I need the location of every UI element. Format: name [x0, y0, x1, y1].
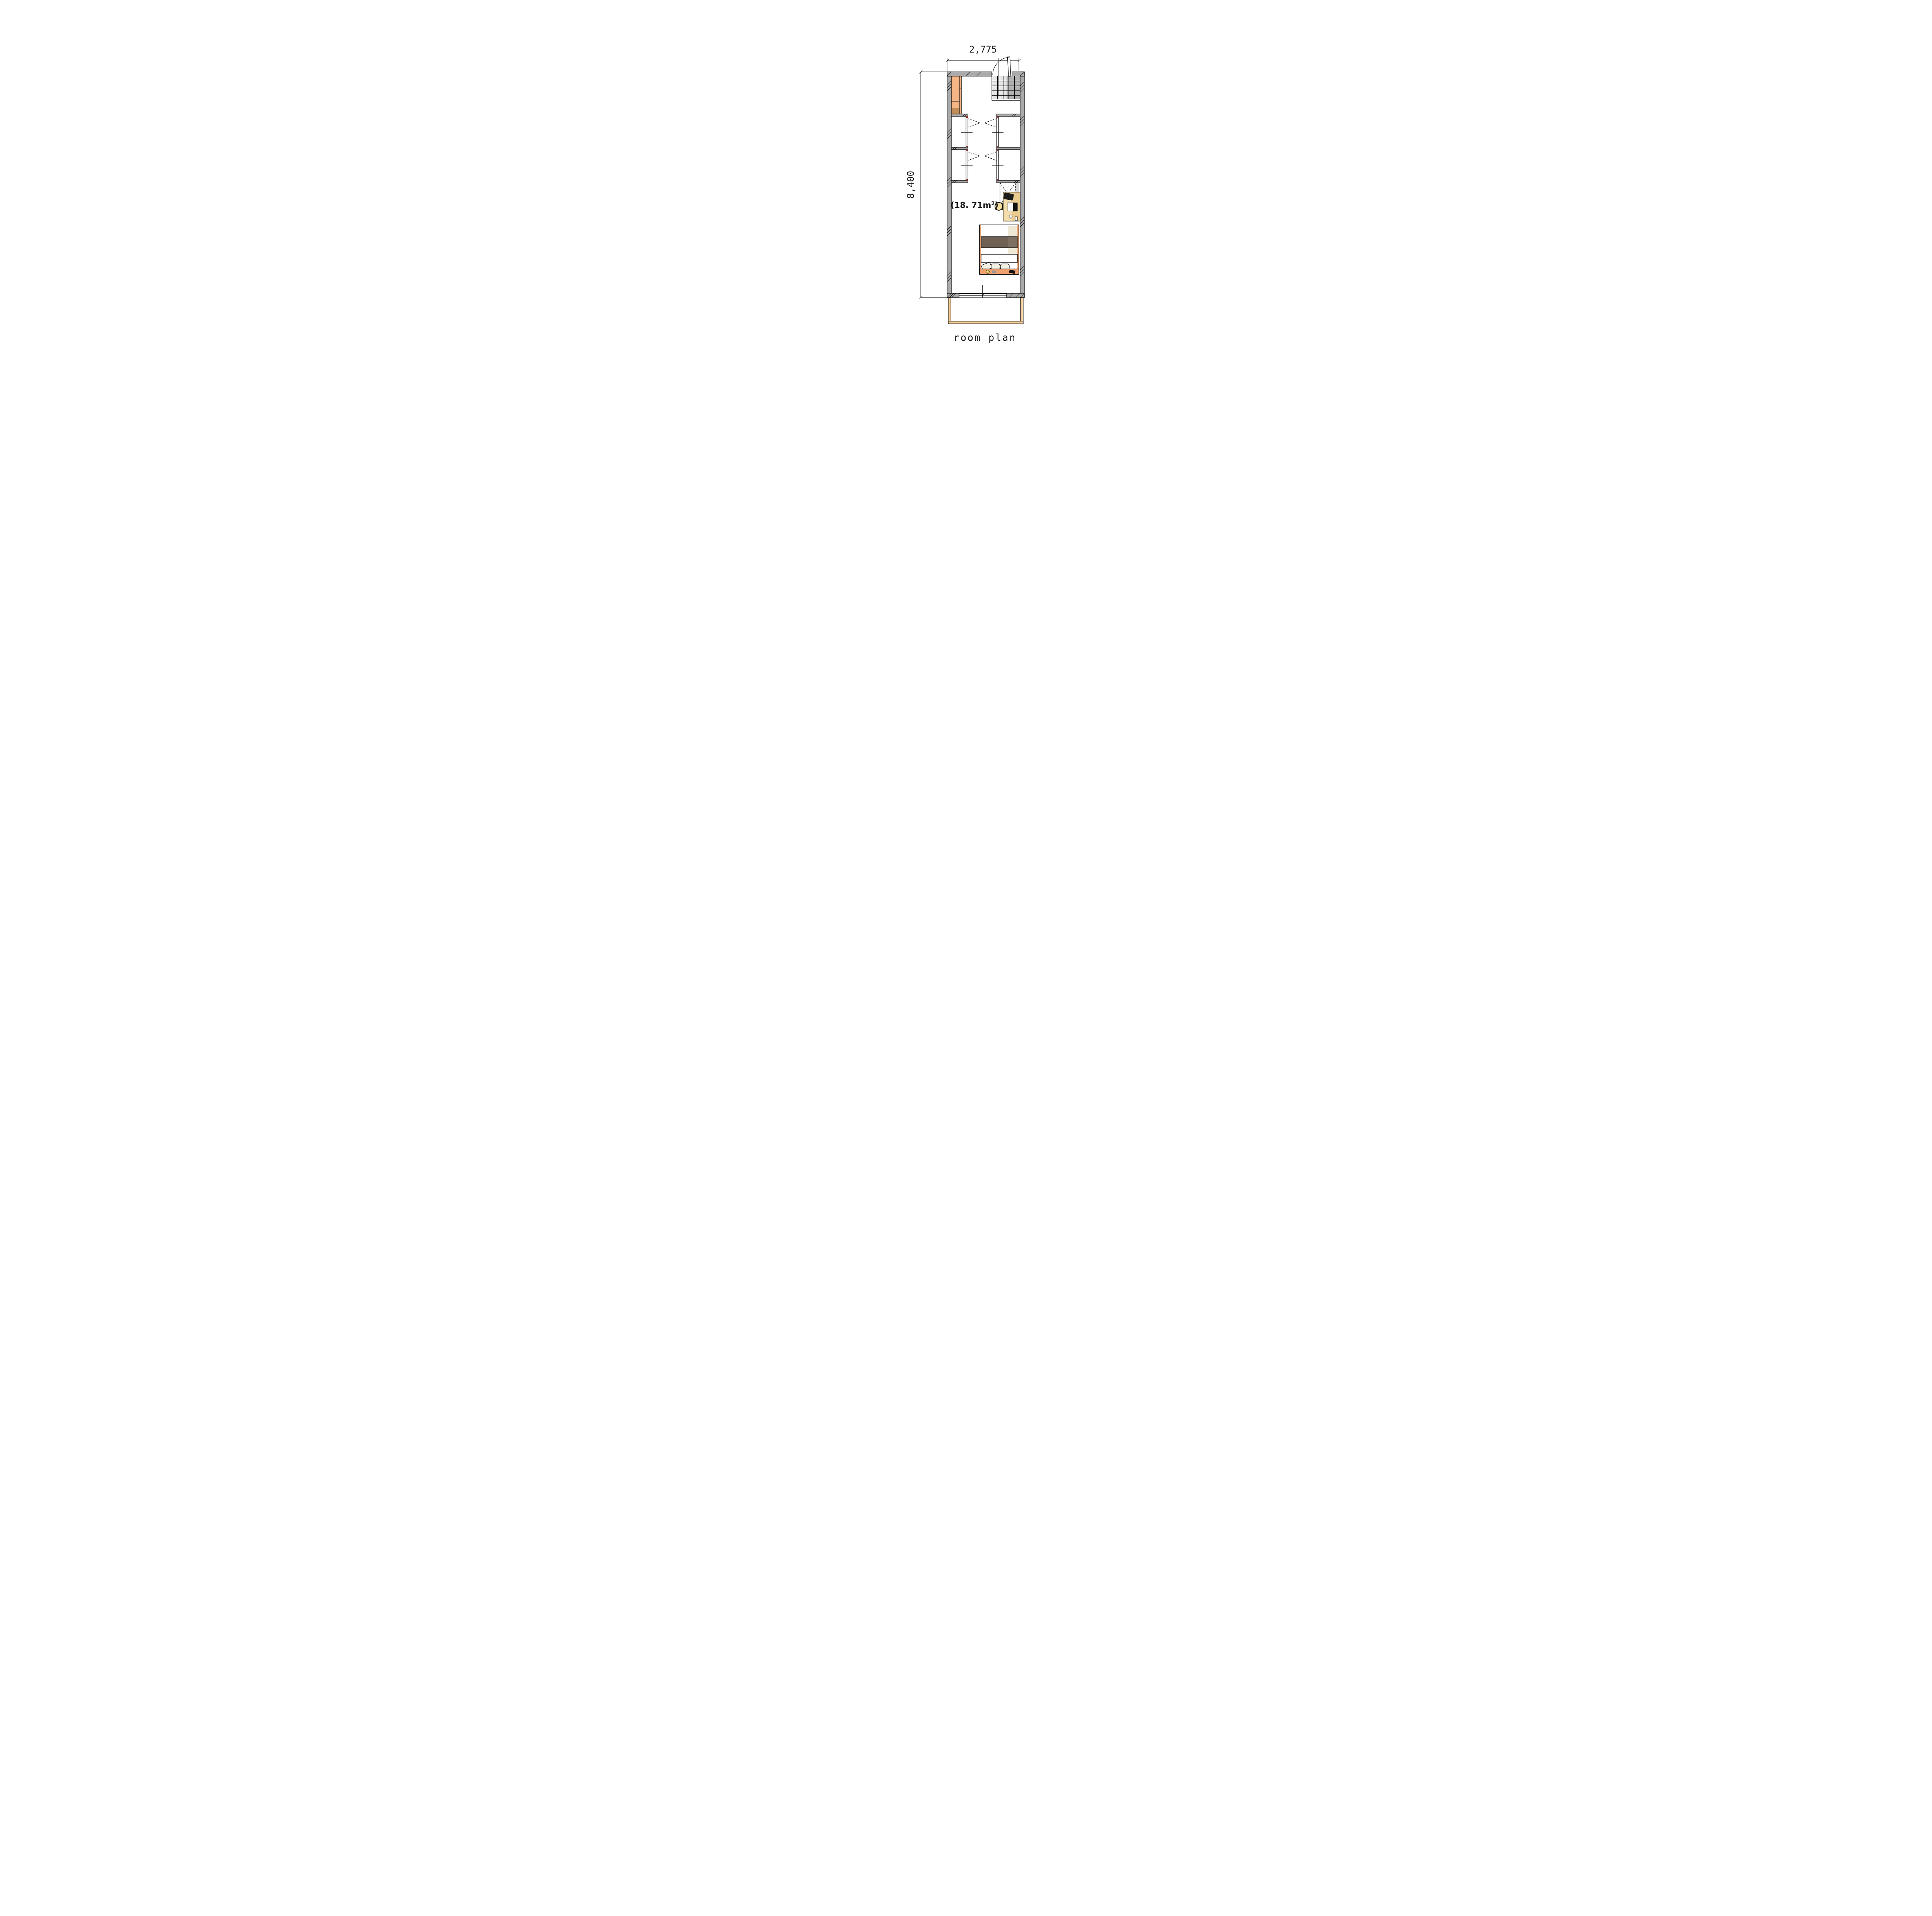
- laptop-screen: [1013, 203, 1017, 211]
- wardrobe-cabinet: [951, 76, 961, 114]
- laptop: [1008, 202, 1017, 211]
- dimension-height: 8,400: [905, 70, 947, 299]
- balcony-rail-bottom: [948, 321, 1023, 324]
- balcony-rail-left: [948, 298, 951, 324]
- floor-plan-page: 2,775 8,400: [695, 0, 1237, 383]
- blanket-shaded: [1008, 237, 1017, 248]
- window-pane: [959, 294, 983, 296]
- wall-bottom-right: [1007, 293, 1024, 298]
- closet-door: [966, 116, 968, 147]
- window-pane: [983, 295, 1007, 297]
- closet-shelf-band: [997, 147, 1020, 150]
- cabinet-base-dark: [951, 108, 959, 114]
- genkan-tile-floor: [992, 76, 1020, 100]
- alarm-clock-face: [987, 271, 988, 272]
- smartphone: [1015, 217, 1017, 221]
- closet-upper-left: [951, 116, 966, 147]
- phone-on-shelf: [992, 271, 996, 273]
- desk-lamp-bulb: [1010, 216, 1011, 217]
- floor-plan-canvas: 2,775 8,400: [695, 0, 1237, 383]
- bed: [980, 225, 1019, 274]
- dimension-height-label: 8,400: [905, 171, 916, 199]
- closet-lower-right: [998, 150, 1020, 180]
- dimension-width-label: 2,775: [969, 44, 997, 55]
- closet-lower-left: [951, 150, 966, 180]
- balcony: [948, 298, 1023, 324]
- closet-door: [966, 150, 968, 180]
- closet-upper-right: [998, 116, 1020, 147]
- wall-left: [947, 72, 951, 298]
- desk-area: [1003, 192, 1020, 221]
- closet-door: [997, 150, 998, 180]
- balcony-floor: [951, 298, 1020, 321]
- balcony-rail-right: [1020, 298, 1023, 324]
- laptop-keyboard: [1008, 202, 1013, 211]
- closet-door: [997, 116, 998, 147]
- bed-sheet: [981, 254, 1017, 262]
- closet-shelf-band: [997, 114, 1020, 116]
- wall-right: [1020, 72, 1024, 298]
- cabinet-door-panel: [959, 76, 961, 114]
- caption: room plan: [953, 332, 1016, 343]
- entrance: [992, 57, 1020, 100]
